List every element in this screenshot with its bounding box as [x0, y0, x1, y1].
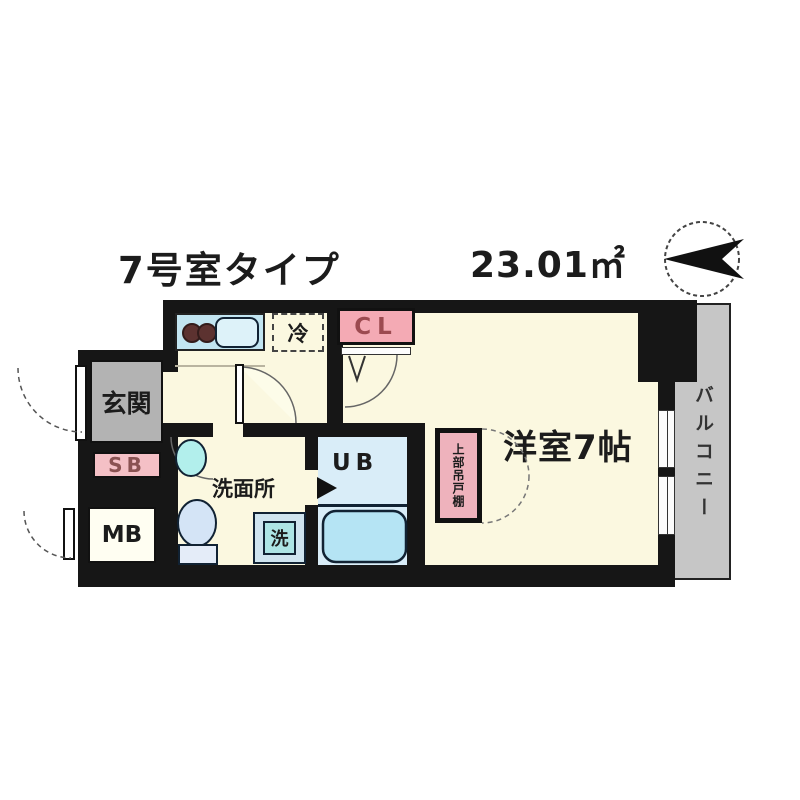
north-arrow-icon — [664, 222, 744, 296]
kitchen-counter — [175, 313, 265, 351]
label-shoe-box: SB — [108, 453, 146, 477]
label-entrance: 玄関 — [101, 384, 151, 420]
washer-inner: 洗 — [263, 521, 296, 555]
entrance-door — [18, 366, 86, 440]
floor-plan-page: 7号室タイプ 23.01㎡ バルコニー 玄関 SB MB 冷 CL — [0, 0, 800, 800]
closet-box: CL — [337, 308, 415, 345]
wall-ub-right — [407, 423, 425, 565]
closet-door-track — [341, 347, 411, 355]
window-lower — [658, 476, 675, 535]
label-closet: CL — [354, 314, 398, 340]
wall-washroom-left — [158, 423, 178, 565]
wall-entrance-top — [78, 350, 178, 360]
upper-cabinet: 上部吊戸棚 — [435, 428, 482, 523]
window-upper — [658, 410, 675, 468]
wall-pillar-topright — [638, 300, 697, 382]
label-meter-box: MB — [102, 522, 142, 548]
wall-washroom-top-b — [243, 423, 425, 437]
wall-top — [163, 300, 697, 313]
area-size-label: 23.01㎡ — [470, 236, 626, 288]
room-entrance: 玄関 — [90, 360, 163, 443]
label-main-room: 洋室7帖 — [503, 420, 633, 469]
wall-entrance-left — [78, 350, 90, 443]
page-title: 7号室タイプ — [118, 240, 341, 294]
wall-ub-left-b — [305, 505, 318, 565]
label-washroom: 洗面所 — [212, 473, 275, 503]
kitchen-front-line — [175, 365, 265, 367]
label-unit-bath: UB — [332, 450, 378, 476]
label-upper-cabinet: 上部吊戸棚 — [450, 443, 467, 508]
ub-tub-surround-line — [318, 504, 407, 507]
label-washer: 洗 — [271, 525, 289, 551]
meter-box-door — [24, 509, 74, 559]
shoe-box: SB — [93, 452, 161, 478]
meter-box: MB — [88, 507, 156, 563]
wall-right-a — [658, 382, 675, 410]
washer-pan: 洗 — [253, 512, 306, 564]
label-balcony: バルコニー — [690, 385, 717, 525]
wall-right-mullion — [658, 468, 675, 476]
label-refrigerator: 冷 — [288, 318, 309, 348]
refrigerator-space: 冷 — [272, 313, 324, 352]
wall-bottom — [78, 565, 675, 587]
wall-washroom-top-a — [163, 423, 213, 437]
wall-ub-left-a — [305, 437, 318, 470]
